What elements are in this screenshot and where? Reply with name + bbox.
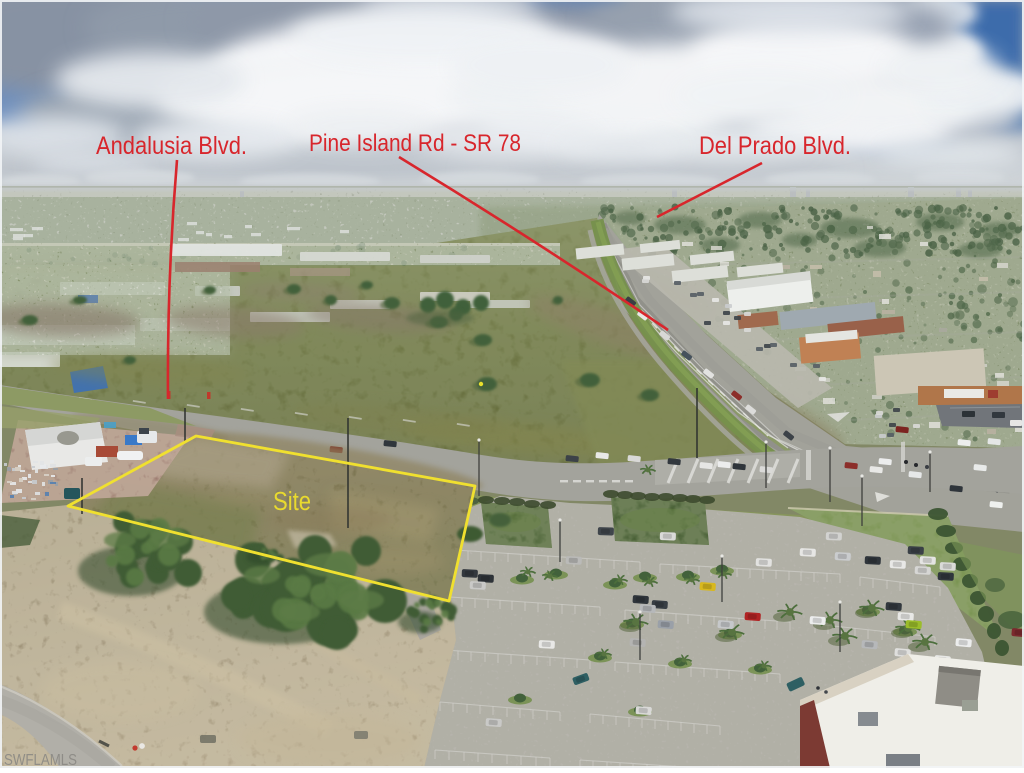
svg-text:SWFLAMLS: SWFLAMLS [4, 752, 77, 768]
svg-text:Del Prado Blvd.: Del Prado Blvd. [699, 132, 851, 160]
svg-text:Site: Site [273, 488, 311, 516]
svg-text:Pine Island Rd - SR 78: Pine Island Rd - SR 78 [309, 130, 521, 157]
svg-text:Andalusia Blvd.: Andalusia Blvd. [96, 132, 247, 160]
